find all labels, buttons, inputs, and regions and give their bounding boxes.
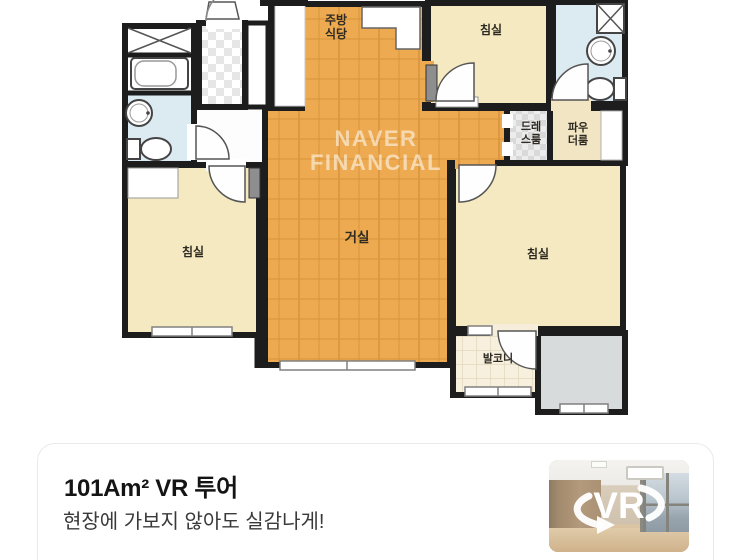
room-label-bedroom-top-right: 침실 [480, 23, 502, 37]
room-label-living-room: 거실 [345, 230, 370, 246]
vr-tour-card[interactable]: 101Am² VR 투어 현장에 가보지 않아도 실감나게! VR [37, 443, 714, 560]
floor-plan-drawing [0, 0, 750, 432]
room-label-balcony: 발코니 [483, 353, 513, 366]
room-label-bedroom-bottom-right: 침실 [527, 247, 549, 261]
room-label-dress-room: 드레 스룸 [521, 121, 541, 147]
vr-badge-icon: VR [549, 460, 689, 552]
vr-card-subtitle: 현장에 가보지 않아도 실감나게! [63, 505, 324, 534]
room-label-powder-room: 파우 더룸 [568, 122, 588, 148]
svg-text:VR: VR [593, 485, 644, 526]
screenshot-root: NAVER FINANCIAL 주방 식당 침실 드레 스룸 파우 더룸 거실 … [0, 0, 750, 560]
room-label-kitchen-dining: 주방 식당 [325, 13, 347, 41]
vr-card-title: 101Am² VR 투어 [64, 468, 238, 503]
floor-plan: NAVER FINANCIAL 주방 식당 침실 드레 스룸 파우 더룸 거실 … [0, 0, 750, 432]
vr-thumbnail[interactable]: VR [549, 460, 689, 552]
room-label-bedroom-left: 침실 [182, 245, 204, 259]
watermark: NAVER FINANCIAL [270, 127, 482, 175]
